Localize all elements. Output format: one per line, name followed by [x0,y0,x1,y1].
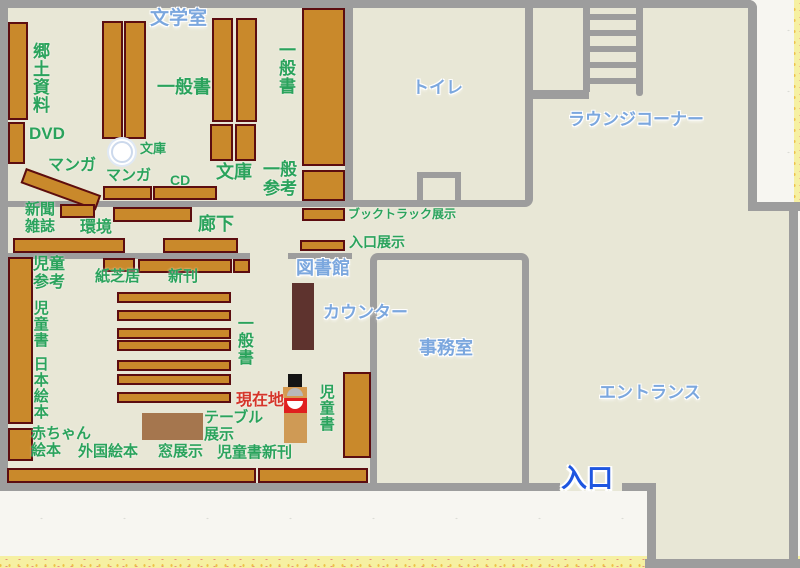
label-current-location: 現在地 [236,392,284,410]
label-children-new-books: 児童書新刊 [217,445,292,462]
bookshelf-environment [13,238,125,253]
label-newspapers-magazines: 新聞 雑誌 [25,202,55,236]
label-children-books-left: 児童書 [31,300,48,348]
toilet-door-niche [417,172,461,207]
bookshelf-window-display-east [258,468,368,483]
kiosk-top [288,374,302,387]
label-foreign-picture-books: 外国絵本 [78,444,138,461]
stairs-step [584,14,643,20]
wall-bottom-west [0,483,560,491]
label-local-materials: 郷土資料 [30,42,49,114]
label-booktruck-display: ブックトラック展示 [348,208,456,221]
label-children-reference: 児童 参考 [33,256,65,292]
paper-border-right [794,0,800,206]
bookshelf-children-row7 [117,392,231,403]
label-bunko-pillar: 文庫 [140,142,166,157]
bookshelf-general-d [236,18,257,122]
bookshelf-general-c [212,18,233,122]
bookshelf-children-row5 [117,360,231,371]
bookshelf-children-row1 [117,292,231,303]
kiosk-base [284,413,307,443]
pillar [111,141,133,163]
kiosk-arc [287,388,303,396]
label-environment: 環境 [80,219,112,237]
bookshelf-bunko-a [210,124,233,161]
wall-right-upper [748,0,757,211]
floor-entry-vestibule [648,483,798,563]
bookshelf-corridor-east [163,238,238,253]
bookshelf-general-a [102,21,123,139]
wall-left [0,0,8,490]
bookshelf-bunko-b [235,124,256,161]
label-entry: 入口 [561,464,613,493]
label-general-books-side: 一般書 [276,41,295,95]
bookshelf-manga-row [103,186,152,200]
label-counter: カウンター [323,303,408,322]
bookshelf-new-books-end [233,259,250,273]
wall-right-lower [789,202,798,568]
label-window-display: 窓展示 [158,444,203,461]
current-location-marker [284,398,307,413]
label-kamishibai: 紙芝居 [95,269,140,286]
bookshelf-children-row6 [117,374,231,385]
bookshelf-children-left [8,257,33,424]
bookshelf-children-row4 [117,340,231,351]
marker-glyph [287,401,303,409]
bookshelf-general-b [124,21,146,139]
label-literature-room: 文学室 [150,8,207,29]
label-general-books-lit: 一般書 [157,77,211,97]
office-walls [370,253,529,484]
bookshelf-window-display-west [7,468,256,483]
label-bunko-shelves: 文庫 [216,162,252,182]
label-toilet: トイレ [412,78,463,97]
bookshelf-booktruck-display [302,208,345,221]
bookshelf-general-reference [302,170,345,201]
label-japanese-picture-books: 日本絵本 [31,356,48,420]
label-table-display: テーブル 展示 [204,410,263,444]
wall-vestibule-left [647,483,656,567]
label-corridor: 廊下 [198,214,234,234]
bookshelf-baby-books [8,428,33,461]
label-library: 図書館 [296,258,350,278]
stairs-step [584,30,643,36]
kiosk-upper [283,387,307,398]
label-children-books-right: 児童書 [317,384,334,432]
stairs-step [584,62,643,68]
bookshelf-general-tall [302,8,345,166]
bookshelf-children-right [343,372,371,458]
bookshelf-children-row2 [117,310,231,321]
counter-desk [292,283,314,350]
label-cd: CD [170,173,190,189]
label-new-books: 新刊 [168,269,198,286]
bookshelf-newspaper [60,204,95,218]
label-entrance-display: 入口展示 [349,235,405,251]
label-dvd: DVD [29,124,65,143]
label-office: 事務室 [419,338,473,358]
label-general-reference: 一般 参考 [263,160,297,198]
display-table [142,413,203,440]
label-manga-row: マンガ [106,168,151,185]
label-entrance-hall: エントランス [599,383,701,402]
stairs-step [584,46,643,52]
label-manga-slanted: マンガ [48,157,96,175]
wall-vestibule-bottom [645,559,800,568]
bookshelf-dvd [8,122,25,164]
stairs-step [584,78,643,84]
bookshelf-local-materials [8,22,28,120]
label-general-books-children: 一般書 [234,315,252,366]
bookshelf-entrance-display [300,240,345,251]
bookshelf-children-row3 [117,328,231,339]
bookshelf-corridor-long [113,207,192,222]
library-floor-map: 文学室 トイレ ラウンジコーナー 図書館 カウンター 事務室 エントランス 入口… [0,0,800,568]
stairs-base-wall [531,90,589,99]
label-lounge-corner: ラウンジコーナー [568,110,704,129]
